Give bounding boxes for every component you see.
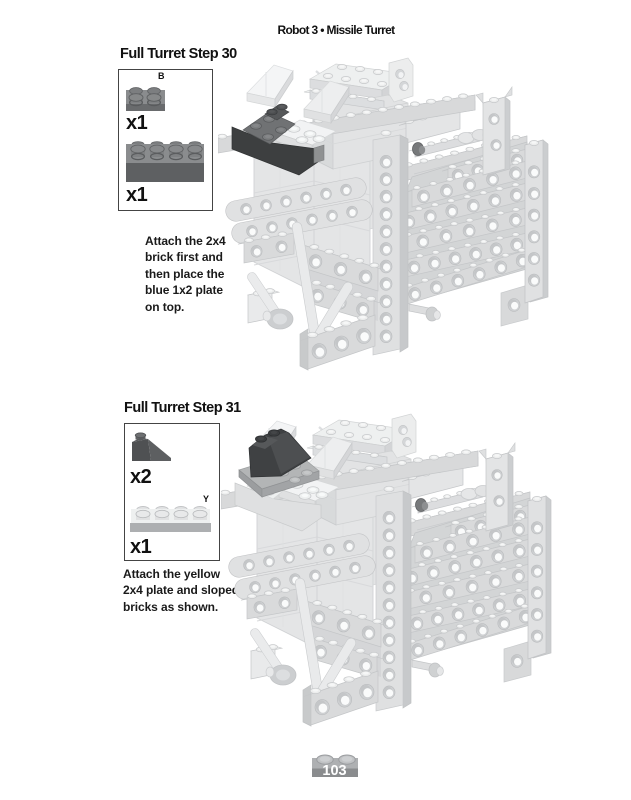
svg-text:103: 103 (322, 763, 346, 777)
